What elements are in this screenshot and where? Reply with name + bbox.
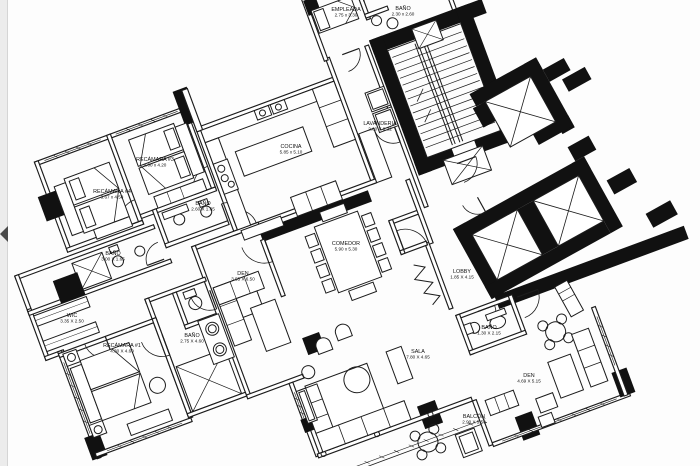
- svg-text:1.85 X 4.15: 1.85 X 4.15: [450, 275, 474, 280]
- svg-text:4.00 x 4.20: 4.00 x 4.20: [144, 163, 167, 168]
- svg-text:5.90 x 5.30: 5.90 x 5.30: [335, 247, 358, 252]
- svg-text:3.35 X 2.50: 3.35 X 2.50: [60, 319, 84, 324]
- svg-text:5.85 x 5.10: 5.85 x 5.10: [280, 150, 303, 155]
- svg-text:1.30 X 2.15: 1.30 X 2.15: [477, 331, 501, 336]
- svg-text:2.30 x 2.60: 2.30 x 2.60: [392, 12, 415, 17]
- svg-text:2.00 X 8.32: 2.00 X 8.32: [368, 127, 392, 132]
- svg-text:3.55 X 6.50: 3.55 X 6.50: [231, 277, 255, 282]
- svg-text:4.30 X 4.60: 4.30 X 4.60: [110, 349, 134, 354]
- svg-text:2.90 X 5.50: 2.90 X 5.50: [462, 420, 486, 425]
- svg-text:2.60 X 1.65: 2.60 X 1.65: [191, 207, 215, 212]
- svg-text:3.00 X 1.65: 3.00 X 1.65: [101, 257, 125, 262]
- svg-text:7.80 X 4.65: 7.80 X 4.65: [406, 355, 430, 360]
- svg-text:3.67 x 4.50: 3.67 x 4.50: [101, 195, 124, 200]
- svg-text:2.75 x 3.30: 2.75 x 3.30: [335, 13, 358, 18]
- svg-text:2.75 X 4.60: 2.75 X 4.60: [180, 339, 204, 344]
- svg-text:4.69 X 5.15: 4.69 X 5.15: [517, 379, 541, 384]
